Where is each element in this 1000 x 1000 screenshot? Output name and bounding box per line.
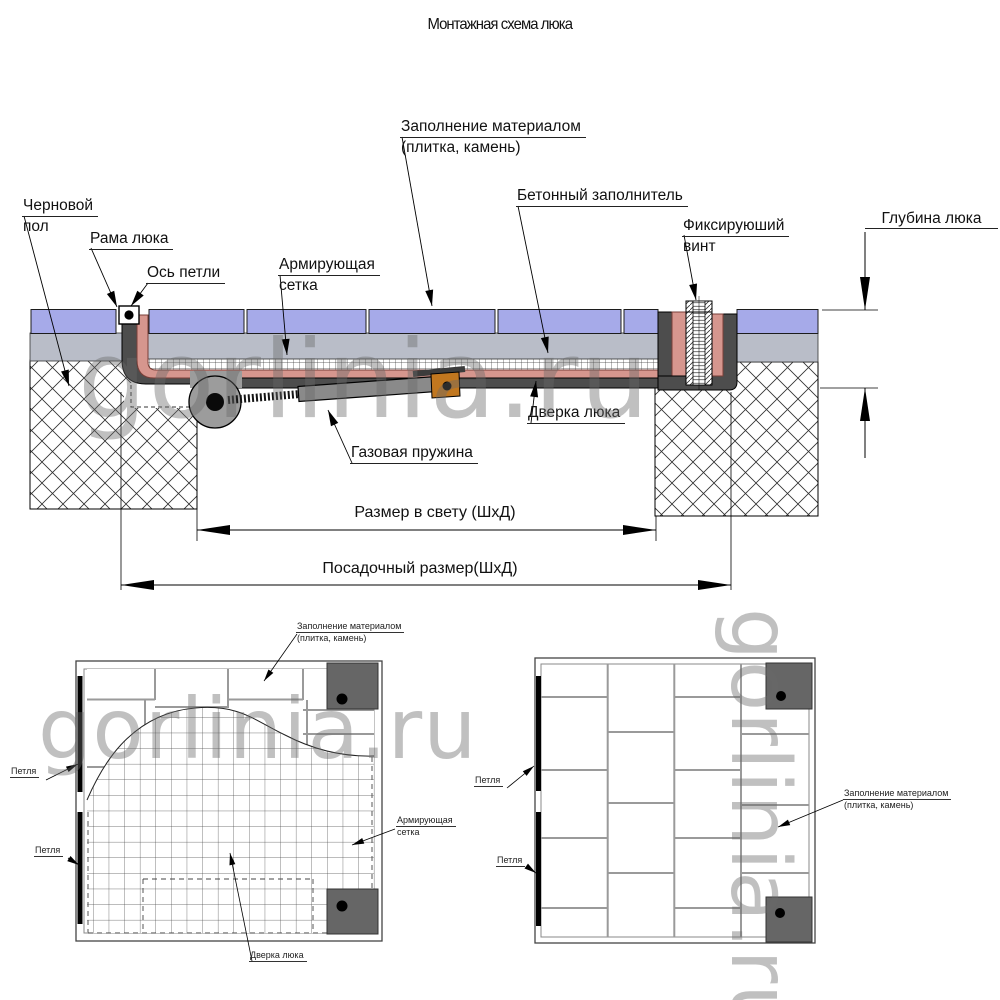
plan-left-label-hinge-bottom: Петля [34, 845, 63, 857]
installation-diagram: Монтажная схема люка Черновой пол Рама л… [0, 0, 1000, 1000]
label-fixing-screw: Фиксируюший винт [682, 216, 789, 256]
spring-mount-plate [766, 663, 812, 709]
label-door-section: Дверка люка [527, 403, 625, 424]
screed-right [737, 333, 818, 362]
plan-left-label-fill: Заполнение материалом (плитка, камень) [296, 621, 404, 644]
plan-right-label-fill: Заполнение материалом (плитка, камень) [843, 788, 951, 811]
hinge-axis [124, 310, 133, 319]
label-concrete-filler: Бетонный заполнитель [516, 186, 688, 207]
label-subfloor: Черновой пол [22, 196, 98, 236]
plan-left-label-mesh: Армирующая сетка [396, 815, 456, 838]
screed-left [30, 333, 122, 361]
concrete-filler [147, 333, 658, 360]
cross-section [24, 137, 878, 590]
clevis-pin [443, 382, 452, 391]
plan-right-label-hinge-bottom: Петля [496, 855, 525, 867]
hinge-strip [78, 812, 83, 924]
plan-right [507, 658, 843, 943]
dimension-mounting-size: Посадочный размер(ШхД) [295, 560, 545, 578]
spring-mount-plate [766, 897, 812, 942]
page-title: Монтажная схема люка [0, 16, 1000, 34]
hinge-strip [78, 676, 83, 792]
plan-left-label-door: Дверка люка [249, 950, 307, 962]
spring-mount-plate [327, 663, 378, 709]
hinge-recess [124, 383, 197, 408]
hinge-pin [206, 393, 224, 411]
dimension-clear-size: Размер в свету (ШхД) [310, 504, 560, 522]
plan-right-label-hinge-top: Петля [474, 775, 503, 787]
label-frame: Рама люка [89, 229, 173, 250]
label-hinge-axis: Ось петли [146, 263, 225, 284]
label-gas-spring: Газовая пружина [350, 443, 478, 464]
label-fill-material: Заполнение материалом (плитка, камень) [400, 117, 586, 157]
spring-mount-plate [327, 889, 378, 934]
label-depth: Глубина люка [865, 209, 998, 229]
plan-left-label-hinge-top: Петля [10, 766, 39, 778]
plan-left [46, 634, 395, 961]
hinge-strip [536, 812, 541, 926]
label-mesh: Армирующая сетка [278, 255, 380, 295]
reinforcing-mesh [147, 359, 658, 370]
hinge-strip [536, 676, 541, 791]
